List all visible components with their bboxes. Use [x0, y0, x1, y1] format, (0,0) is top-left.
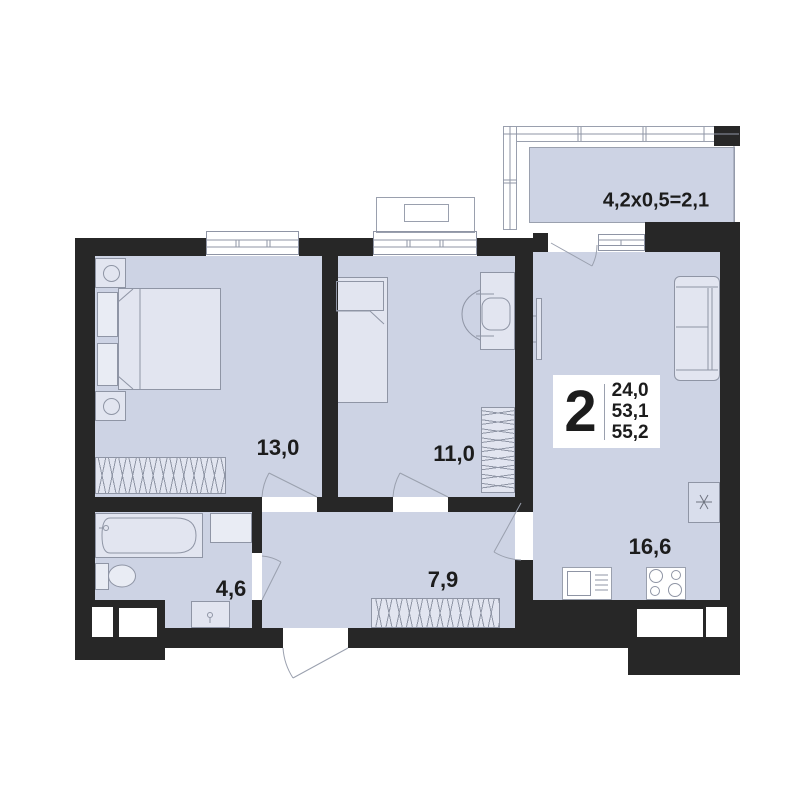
kitchen-counter-sink [562, 567, 612, 600]
wall-right [720, 222, 740, 648]
wardrobe-child-room [481, 407, 515, 493]
bathtub [95, 513, 203, 558]
stove [646, 567, 686, 600]
area-total: 55,2 [612, 422, 649, 443]
floor-plan: 13,0 11,0 16,6 7,9 4,6 4,2x0,5=2,1 2 24,… [0, 0, 800, 800]
shaft [706, 607, 727, 637]
wall-kitchen-top-left [533, 233, 548, 252]
room-area-label-child-room: 11,0 [433, 441, 475, 467]
sofa [674, 276, 720, 381]
partition-bath-bottom [252, 600, 262, 628]
card-divider [604, 384, 605, 440]
single-bed [332, 277, 388, 403]
area-living: 24,0 [612, 380, 649, 401]
apartment-areas: 24,0 53,1 55,2 [612, 380, 649, 443]
partition-bedroom-child [322, 238, 338, 512]
balcony-corner-block [714, 126, 740, 146]
wall-kitchen-top-right [645, 222, 720, 252]
pillow [97, 292, 118, 337]
ac-basket-inner [404, 204, 449, 222]
shaft [92, 607, 113, 637]
wardrobe-hallway [371, 598, 500, 628]
rooms-count: 2 [564, 383, 596, 441]
wall-left [75, 238, 95, 648]
room-area-label-hallway: 7,9 [428, 567, 459, 593]
entrance-door [283, 648, 348, 678]
vanity-sink [191, 601, 230, 628]
lamp-icon [103, 398, 120, 415]
partition-bath-top [252, 512, 262, 553]
shaft [119, 608, 157, 637]
room-area-label-bedroom: 13,0 [257, 435, 300, 461]
desk [480, 272, 515, 350]
child-room-window [373, 232, 477, 255]
apartment-info-card: 2 24,0 53,1 55,2 [553, 375, 660, 448]
vent-shaft-box [688, 482, 720, 523]
room-area-label-bathroom: 4,6 [216, 576, 247, 602]
pillow [97, 343, 118, 386]
balcony-glazing-top [503, 126, 739, 142]
balcony-dimensions-label: 4,2x0,5=2,1 [603, 190, 709, 213]
double-bed [118, 288, 221, 390]
balcony-glazing-left [503, 126, 517, 230]
partition-kitchen-top [515, 252, 533, 502]
room-area-label-kitchen-living: 16,6 [629, 534, 672, 560]
kitchen-window [598, 235, 645, 251]
nightstand-bottom [95, 391, 126, 421]
tv [536, 298, 542, 360]
bedroom-window [206, 232, 299, 255]
shaft [637, 609, 703, 637]
wall-bottom-right-ext [628, 648, 740, 675]
partition-kitchen-bottom [515, 560, 533, 628]
wardrobe-bedroom [95, 457, 226, 494]
area-without-balcony: 53,1 [612, 401, 649, 422]
lamp-icon [103, 265, 120, 282]
partition-hall-1 [95, 497, 262, 512]
nightstand-top [95, 258, 126, 288]
wall-top-a [75, 238, 206, 256]
washing-machine [210, 513, 252, 543]
partition-hall-2 [317, 497, 393, 512]
